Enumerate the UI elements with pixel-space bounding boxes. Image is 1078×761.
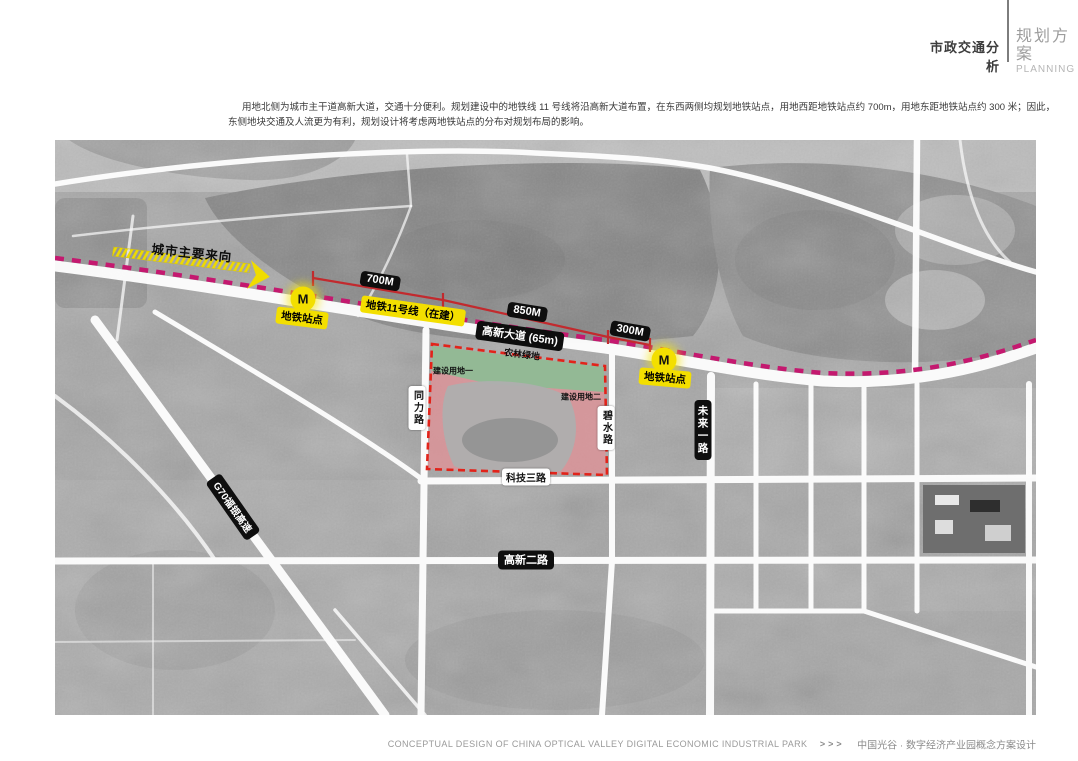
- parcel-2-label: 建设用地二: [561, 392, 601, 403]
- footer: CONCEPTUAL DESIGN OF CHINA OPTICAL VALLE…: [0, 735, 1036, 753]
- road-label-weilai1: 未来一路: [695, 400, 712, 460]
- intro-line-2: 东侧地块交通及人流更为有利，规划设计将考虑两地铁站点的分布对规划布局的影响。: [228, 115, 1055, 130]
- subtitle-en: PLANNING: [1016, 64, 1078, 75]
- footer-english: CONCEPTUAL DESIGN OF CHINA OPTICAL VALLE…: [388, 739, 808, 749]
- road-label-tongli: 同力路: [409, 386, 426, 430]
- intro-paragraph: 用地北侧为城市主干道高新大道，交通十分便利。规划建设中的地铁线 11 号线将沿高…: [228, 100, 1055, 130]
- road-label-gaoxin2: 高新二路: [498, 551, 554, 570]
- intro-line-1: 用地北侧为城市主干道高新大道，交通十分便利。规划建设中的地铁线 11 号线将沿高…: [228, 100, 1055, 115]
- planning-slide-page: 市政交通分析 规划方案 PLANNING 用地北侧为城市主干道高新大道，交通十分…: [0, 0, 1078, 761]
- road-label-keji3: 科技三路: [502, 469, 550, 486]
- parcel-1-label: 建设用地一: [433, 366, 473, 377]
- industrial-block: [923, 485, 1025, 553]
- subtitle-cn: 规划方案: [1016, 28, 1078, 64]
- header-subtitle-block: 规划方案 PLANNING: [1016, 28, 1078, 75]
- header-divider: [1007, 0, 1009, 62]
- road-label-bishui: 碧水路: [598, 406, 615, 450]
- section-title: 市政交通分析: [924, 37, 1000, 75]
- traffic-analysis-map: 城市主要来向 地铁11号线（在建） 高新大道 (65m) 700M 850M 3…: [55, 140, 1036, 715]
- footer-arrows: >>>: [820, 739, 845, 749]
- footer-chinese: 中国光谷 · 数字经济产业园概念方案设计: [857, 740, 1036, 751]
- satellite-map-graphic: [55, 140, 1036, 715]
